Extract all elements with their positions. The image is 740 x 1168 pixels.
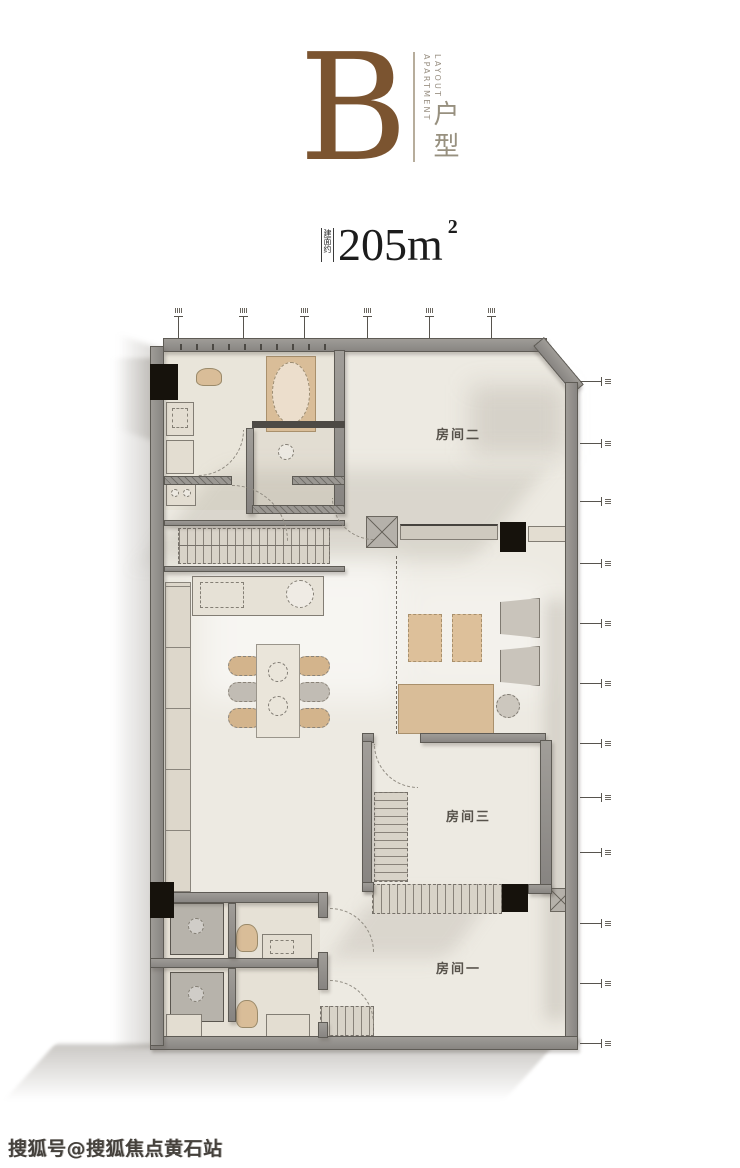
shower-drain (278, 444, 294, 460)
dimension-tick (491, 316, 492, 338)
dimension-tick (580, 1043, 602, 1044)
kitchen-cabinet-run (165, 582, 191, 892)
dimension-tick (580, 743, 602, 744)
bath-cabinet (166, 1014, 202, 1038)
toilet-2 (236, 1000, 258, 1028)
wall-shower2-side (228, 968, 236, 1022)
area-value: 205m (338, 222, 443, 268)
window-mullions (180, 344, 330, 350)
watermark: 搜狐号@搜狐焦点黄石站 (8, 1134, 223, 1161)
wall-left (150, 346, 164, 1046)
room1-label: 房间一 (436, 958, 481, 977)
wall-hall-b (318, 952, 328, 990)
bathtub (272, 362, 310, 424)
shower-drain-1 (188, 918, 204, 934)
toilet-ensuite (196, 368, 222, 386)
dining-chair (296, 682, 330, 702)
wall-wardrobe-bottom (164, 566, 345, 572)
dimension-tick (580, 983, 602, 984)
wall-bath-top (150, 892, 328, 903)
laundry-cabinet (166, 484, 196, 506)
wall-bottom (150, 1036, 578, 1050)
dimension-tick (580, 923, 602, 924)
wall-right (565, 382, 578, 1042)
wall-room3-bottom-a (362, 882, 374, 892)
area-line: 建面约 205m 2 (321, 222, 457, 268)
wall-room3-bottom-b (528, 884, 552, 894)
wall-hall-c (318, 1022, 328, 1038)
column (502, 884, 528, 912)
header-divider (413, 52, 415, 162)
bed (398, 684, 494, 734)
wall-bathsuite-bottom-b (292, 476, 345, 485)
column (500, 522, 526, 552)
floor-cushion-a (408, 614, 442, 662)
room-boundary-dashed (396, 556, 397, 734)
dimension-tick (580, 797, 602, 798)
room2-label: 房间二 (436, 424, 481, 443)
column (150, 364, 178, 400)
dimension-tick (580, 852, 602, 853)
laundry-knob-a (171, 489, 179, 497)
dining-chair (296, 656, 330, 676)
laundry-knob-b (183, 489, 191, 497)
vanity-cabinet-b (166, 440, 194, 474)
wall-room3-top-b (420, 733, 546, 743)
wardrobe-rail (178, 545, 330, 546)
dimension-tick (304, 316, 305, 338)
floor-cushion-b (452, 614, 482, 662)
kitchen-sink (286, 580, 314, 608)
lounge-chair-b (500, 646, 540, 686)
dimension-tick (580, 381, 602, 382)
dining-chair (296, 708, 330, 728)
dimension-tick (243, 316, 244, 338)
basin-1 (270, 940, 294, 954)
column (150, 882, 174, 918)
shower-drain-2 (188, 986, 204, 1002)
wall-shower1-side (228, 903, 236, 958)
room3-wardrobe (374, 792, 408, 882)
table-centerpiece-b (268, 696, 288, 716)
dimension-tick (580, 501, 602, 502)
area-exponent: 2 (448, 216, 458, 239)
dimension-tick (580, 683, 602, 684)
building-shadow-left (112, 358, 154, 1048)
basin-a (172, 408, 188, 428)
vanity-2 (266, 1014, 310, 1038)
page: B APARTMENT LAYOUT 户型 建面约 205m 2 (0, 0, 740, 1168)
dimension-tick (178, 316, 179, 338)
dimension-tick (367, 316, 368, 338)
wall-bathsuite-right (334, 350, 345, 514)
wall-hall-a (318, 892, 328, 918)
wall-bath-divider (150, 958, 318, 968)
toilet-1 (236, 924, 258, 952)
cooktop (200, 582, 244, 608)
lounge-chair-a (500, 598, 540, 638)
wall-bathsuite-bottom-a (164, 476, 232, 485)
area-prefix: 建面约 (321, 228, 334, 262)
building-shadow-bottom (0, 1044, 555, 1110)
wall-tub-partition (252, 421, 345, 428)
wall-room3-left (362, 741, 372, 891)
huxing-vertical-text: 户型 (426, 100, 463, 164)
dimension-tick (429, 316, 430, 338)
stool (496, 694, 520, 718)
bedhead-console (400, 524, 498, 540)
room3-label: 房间三 (446, 806, 491, 825)
dimension-tick (580, 563, 602, 564)
dimension-tick (580, 443, 602, 444)
closet-strip (372, 884, 502, 914)
wall-room3-right (540, 740, 552, 892)
dimension-tick (580, 623, 602, 624)
table-centerpiece-a (268, 662, 288, 682)
dining-table (256, 644, 300, 738)
niche-counter (528, 526, 566, 542)
plan-letter: B (299, 34, 408, 182)
